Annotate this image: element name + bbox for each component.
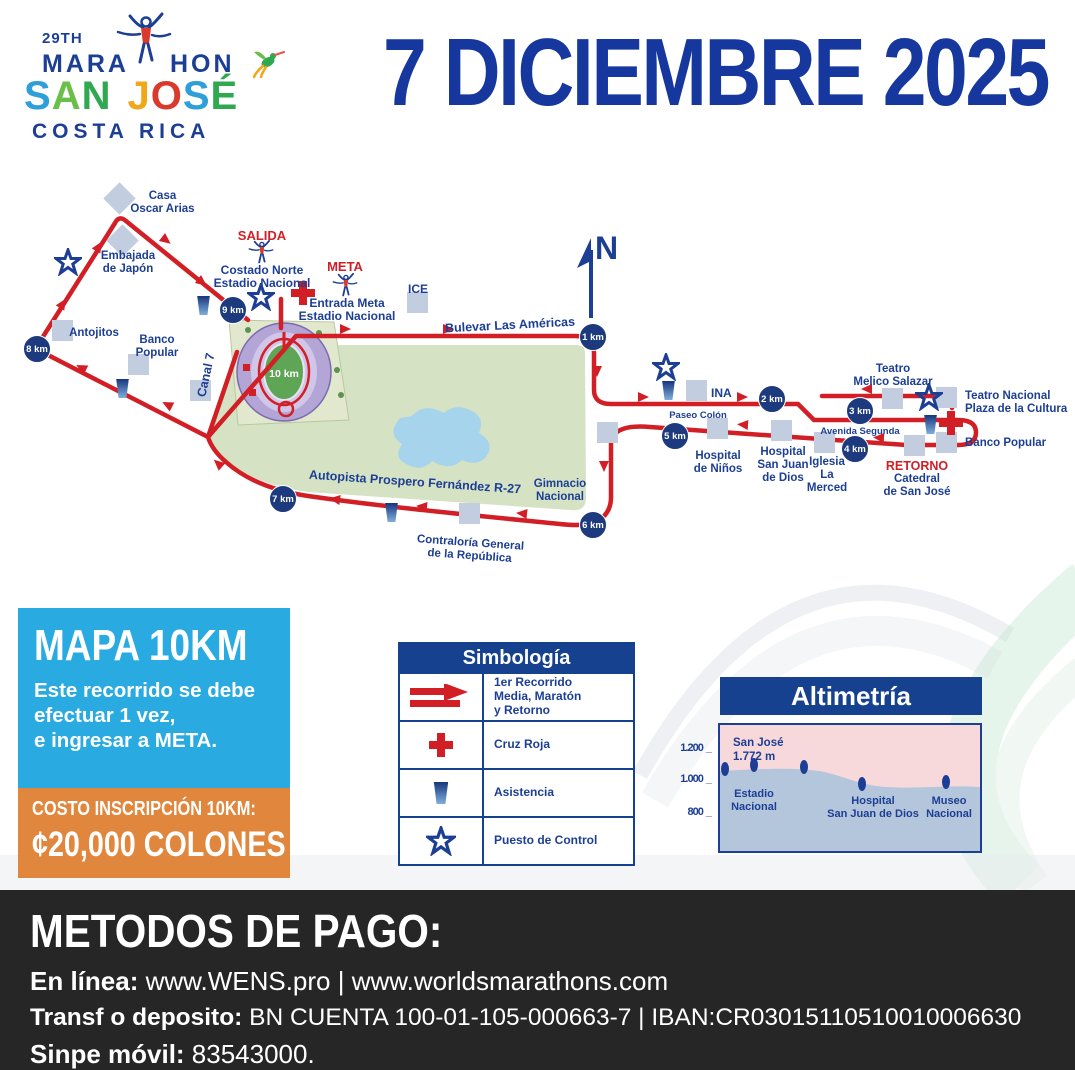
legend-panel: Simbología 1er Recorrido Media, Maratón … <box>398 642 635 866</box>
label-catedral: Catedral de San José <box>872 473 962 499</box>
north-arrow-icon <box>577 238 591 318</box>
km-marker-1: 1 km <box>579 323 607 351</box>
km-marker-8: 8 km <box>23 335 51 363</box>
north-label: N <box>595 230 618 267</box>
label-salida: SALIDA <box>222 229 302 244</box>
payment-label: Sinpe móvil: <box>30 1039 185 1069</box>
legend-body: 1er Recorrido Media, Maratón y Retorno C… <box>398 674 635 866</box>
marathon-poster: { "colors":{"navy":"#1C3E94","title_navy… <box>0 0 1075 1070</box>
label-meta: META <box>305 260 385 275</box>
payment-line-sinpe: Sinpe móvil: 83543000. <box>30 1039 1075 1070</box>
payment-line-online: En línea: www.WENS.pro | www.worldsmarat… <box>30 966 1075 997</box>
route-arrow-icon <box>400 684 482 710</box>
price-label: COSTO INSCRIPCIÓN 10KM: <box>32 798 232 821</box>
x-label-museo: Museo Nacional <box>914 795 984 820</box>
label-ina: INA <box>711 387 751 400</box>
legend-row-label: 1er Recorrido Media, Maratón y Retorno <box>482 674 633 720</box>
info-box-description: Este recorrido se debe efectuar 1 vez, e… <box>34 678 274 753</box>
building-ina <box>686 380 707 401</box>
legend-row: Cruz Roja <box>400 720 633 768</box>
legend-row-label: Puesto de Control <box>482 818 633 864</box>
elevation-panel-title: Altimetría <box>720 677 982 715</box>
label-teatro-melico: Teatro Melico Salazar <box>848 363 938 389</box>
legend-row: Asistencia <box>400 768 633 816</box>
payment-line-transfer: Transf o deposito: BN CUENTA 100-01-105-… <box>30 1004 1075 1032</box>
building-contraloria <box>459 503 480 524</box>
label-retorno: RETORNO <box>877 459 957 473</box>
y-tick-800: 800 _ <box>672 806 712 818</box>
payment-value: 83543000. <box>185 1039 315 1069</box>
route-map: 1 km 2 km 3 km 4 km 5 km 6 km 7 km 8 km … <box>0 0 1075 600</box>
km-marker-7: 7 km <box>269 485 297 513</box>
km-marker-6: 6 km <box>579 511 607 539</box>
elevation-annotation: San José 1.772 m <box>733 737 784 765</box>
km-marker-9: 9 km <box>219 296 247 324</box>
label-paseo-colon: Paseo Colón <box>660 411 736 422</box>
assistance-cone-icon <box>400 782 482 804</box>
legend-row: Puesto de Control <box>400 816 633 864</box>
label-iglesia-merced: Iglesia La Merced <box>797 456 857 495</box>
map-info-box: MAPA 10KM Este recorrido se debe efectua… <box>18 608 290 788</box>
km-marker-10: 10 km <box>262 368 306 380</box>
payment-value: BN CUENTA 100-01-105-000663-7 | IBAN:CR0… <box>242 1004 1021 1031</box>
label-casa-oscar-arias: Casa Oscar Arias <box>120 190 205 216</box>
km-marker-3: 3 km <box>846 397 874 425</box>
payment-title: METODOS DE PAGO: <box>30 904 950 958</box>
km-marker-5: 5 km <box>661 422 689 450</box>
label-banco-popular-right: Banco Popular <box>965 437 1065 450</box>
label-costado-norte: Costado Norte Estadio Nacional <box>207 264 317 291</box>
y-tick-1000: 1.000 _ <box>672 773 712 785</box>
control-star-icon <box>652 353 680 381</box>
building-hospital-sjd <box>771 420 792 441</box>
payment-label: Transf o deposito: <box>30 1004 242 1031</box>
label-avenida-segunda: Avenida Segunda <box>812 427 908 438</box>
legend-row-label: Cruz Roja <box>482 722 633 768</box>
label-entrada-meta: Entrada Meta Estadio Nacional <box>292 297 402 324</box>
control-star-icon <box>400 826 482 856</box>
legend-title: Simbología <box>398 642 635 674</box>
red-cross-icon <box>400 732 482 758</box>
payment-section: METODOS DE PAGO: En línea: www.WENS.pro … <box>0 890 1075 1070</box>
legend-row: 1er Recorrido Media, Maratón y Retorno <box>400 674 633 720</box>
control-star-icon <box>54 248 82 276</box>
y-tick-1200: 1.200 _ <box>672 742 712 754</box>
red-cross-icon <box>938 410 964 436</box>
building-teatro-melico <box>882 388 903 409</box>
building-avenida-west <box>597 422 618 443</box>
payment-label: En línea: <box>30 966 138 996</box>
price-value: ¢20,000 COLONES <box>32 825 232 865</box>
payment-value: www.WENS.pro | www.worldsmarathons.com <box>138 966 668 996</box>
building-catedral <box>904 435 925 456</box>
x-label-estadio: Estadio Nacional <box>722 788 786 813</box>
label-embajada: Embajada de Japón <box>88 250 168 276</box>
price-box: COSTO INSCRIPCIÓN 10KM: ¢20,000 COLONES <box>18 788 290 878</box>
km-marker-2: 2 km <box>758 385 786 413</box>
label-hospital-ninos: Hospital de Niños <box>683 450 753 476</box>
info-box-title: MAPA 10KM <box>34 624 236 668</box>
legend-row-label: Asistencia <box>482 770 633 816</box>
label-teatro-nacional: Teatro Nacional Plaza de la Cultura <box>965 390 1070 416</box>
label-ice: ICE <box>398 283 438 296</box>
label-banco-popular-left: Banco Popular <box>117 334 197 360</box>
